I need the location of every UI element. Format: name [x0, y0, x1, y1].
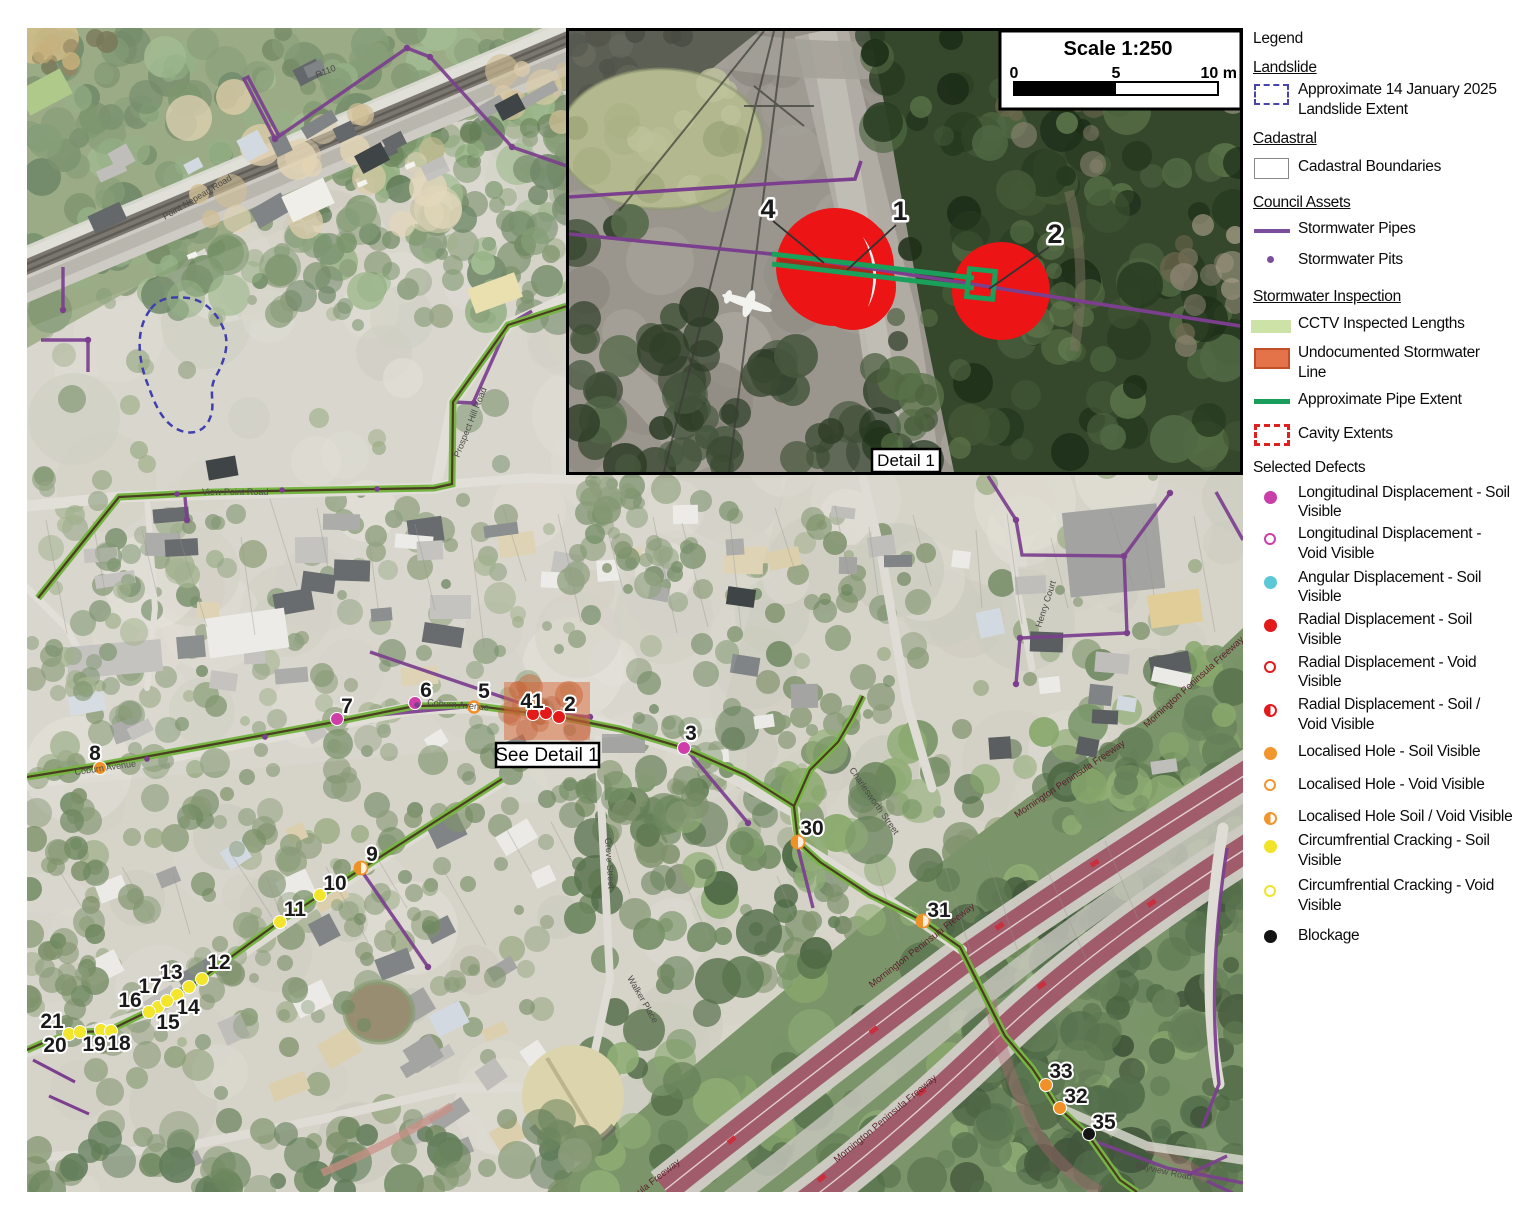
svg-text:8: 8 [89, 742, 101, 765]
svg-text:33: 33 [1049, 1060, 1072, 1083]
svg-text:35: 35 [1092, 1111, 1116, 1134]
svg-text:1: 1 [892, 196, 907, 226]
svg-text:16: 16 [118, 989, 141, 1012]
svg-text:See Detail 1: See Detail 1 [495, 745, 599, 766]
svg-text:0: 0 [1010, 65, 1019, 82]
svg-text:2: 2 [564, 693, 576, 716]
svg-text:10: 10 [323, 872, 346, 895]
svg-text:Scale 1:250: Scale 1:250 [1064, 38, 1173, 60]
svg-text:Detail 1: Detail 1 [877, 451, 935, 470]
svg-text:19: 19 [82, 1033, 105, 1056]
svg-text:21: 21 [40, 1010, 64, 1033]
svg-text:15: 15 [156, 1011, 180, 1034]
svg-text:3: 3 [685, 722, 697, 745]
svg-text:11: 11 [284, 898, 307, 921]
svg-text:4: 4 [760, 194, 775, 224]
svg-text:17: 17 [138, 975, 161, 998]
svg-text:20: 20 [43, 1034, 66, 1057]
svg-text:View Point Road: View Point Road [202, 487, 268, 497]
svg-text:2: 2 [1047, 219, 1062, 249]
svg-text:30: 30 [800, 817, 823, 840]
svg-text:7: 7 [341, 695, 353, 718]
svg-text:18: 18 [107, 1032, 131, 1055]
svg-text:5: 5 [478, 680, 490, 703]
svg-text:41: 41 [520, 690, 544, 713]
svg-text:10 m: 10 m [1201, 65, 1237, 82]
svg-text:6: 6 [420, 679, 432, 702]
svg-text:5: 5 [1112, 65, 1121, 82]
svg-text:32: 32 [1064, 1085, 1087, 1108]
svg-text:9: 9 [366, 843, 378, 866]
svg-text:14: 14 [176, 996, 200, 1019]
svg-text:31: 31 [927, 899, 951, 922]
svg-text:12: 12 [207, 951, 230, 974]
svg-text:13: 13 [159, 961, 182, 984]
